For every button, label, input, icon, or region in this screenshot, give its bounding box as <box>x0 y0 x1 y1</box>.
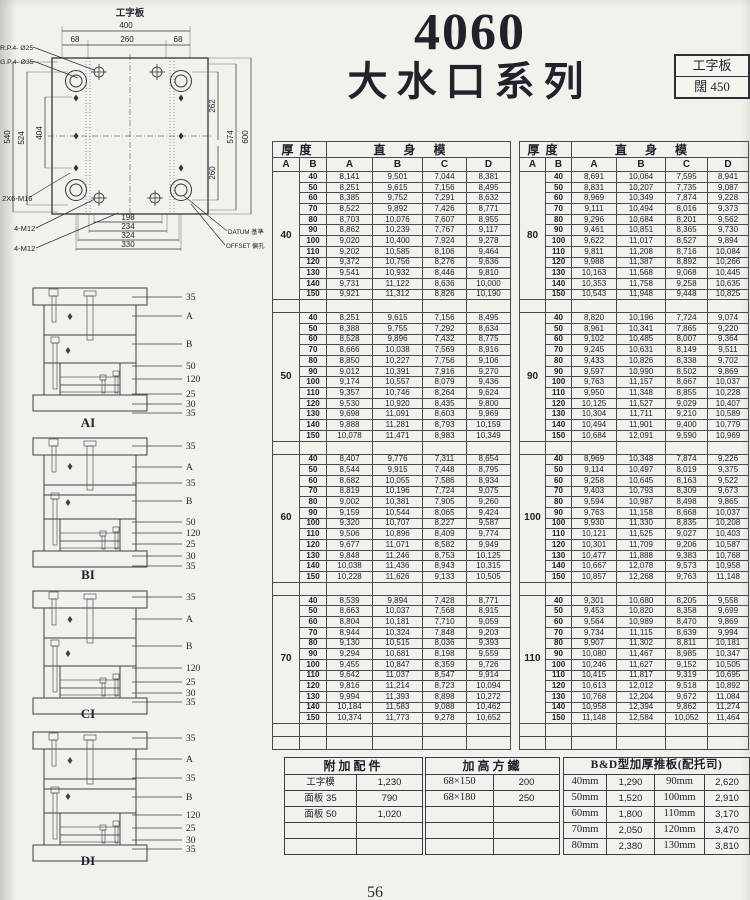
price-cell: 11,037 <box>373 670 423 681</box>
thickness-b-value: 110 <box>546 388 572 399</box>
table-row: 1409,88811,2818,79310,159 <box>273 420 511 431</box>
table-row: 15010,85712,2689,76311,148 <box>520 572 749 583</box>
price-cell: 9,811 <box>572 246 617 257</box>
section-callout: 50 <box>186 362 196 372</box>
price-cell: 10,196 <box>617 313 666 324</box>
price-cell: 8,409 <box>423 529 467 540</box>
table-row: 809,43310,8268,3389,702 <box>520 356 749 367</box>
table-row: 909,76311,1588,66810,037 <box>520 507 749 518</box>
dim-404: 404 <box>35 126 44 140</box>
price-cell: 9,816 <box>327 681 373 692</box>
price-cell: 10,990 <box>617 366 666 377</box>
price-cell: 12,268 <box>617 572 666 583</box>
section-callout: 30 <box>186 552 196 562</box>
screw-hole-circles <box>91 64 165 206</box>
price-cell: 11,711 <box>617 409 666 420</box>
price-cell: 8,502 <box>666 366 708 377</box>
price-cell: 8,944 <box>327 627 373 638</box>
price-cell: 8,862 <box>327 225 373 236</box>
price-cell: 9,159 <box>327 507 373 518</box>
section-callout: 35 <box>186 479 196 489</box>
price-cell: 7,724 <box>423 486 467 497</box>
callout-4-m12-b: 4-M12 <box>14 244 35 253</box>
table-row: 40mm1,29090mm2,620 <box>564 775 750 791</box>
price-cell: 8,663 <box>327 606 373 617</box>
price-cell: 11,527 <box>617 398 666 409</box>
thickness-b-value: 90 <box>546 649 572 660</box>
price-cell: 9,364 <box>708 334 749 345</box>
page-number: 56 <box>352 884 398 900</box>
price-cell: 9,403 <box>572 486 617 497</box>
col-header-d: D <box>708 158 749 172</box>
thickness-b-value: 50 <box>546 323 572 334</box>
table-row: 609,25810,6458,1639,522 <box>520 475 749 486</box>
price-cell: 9,862 <box>666 702 708 713</box>
price-cell: 8,666 <box>327 345 373 356</box>
price-cell: 9,400 <box>666 420 708 431</box>
price-cell: 11,115 <box>617 627 666 638</box>
callout-2x6-m16: 2X6-M16 <box>2 194 32 203</box>
price-cell: 10,228 <box>708 388 749 399</box>
section-callout: B <box>186 793 192 803</box>
price-cell: 7,924 <box>423 236 467 247</box>
thickness-b-value: 140 <box>300 420 327 431</box>
price-cell: 10,958 <box>572 702 617 713</box>
riser-block-table: 加高方鐵 68×15020068×180250 <box>425 757 560 855</box>
thickness-b-value: 80 <box>546 638 572 649</box>
price-cell: 9,573 <box>666 561 708 572</box>
price-cell: 8,019 <box>666 465 708 476</box>
thickness-b-value: 40 <box>300 595 327 606</box>
price-cell: 8,522 <box>327 204 373 215</box>
table-row: 80408,69110,0647,5958,941 <box>520 172 749 183</box>
section-callout: 25 <box>186 540 196 550</box>
table-row: 1009,45510,8478,3599,726 <box>273 659 511 670</box>
price-cell: 9,174 <box>327 377 373 388</box>
price-cell: 10,851 <box>617 225 666 236</box>
thickness-b-value: 110 <box>546 529 572 540</box>
dim-600: 600 <box>241 130 250 144</box>
price-cell: 9,501 <box>373 172 423 183</box>
table-cell: 100mm <box>655 791 705 807</box>
price-cell: 8,961 <box>572 323 617 334</box>
price-cell: 11,888 <box>617 550 666 561</box>
table-row: 14010,49411,9019,40010,779 <box>520 420 749 431</box>
table-row: 工字模1,230 <box>285 775 423 791</box>
thickness-b-value: 110 <box>546 670 572 681</box>
table-row <box>426 807 560 823</box>
price-cell: 10,544 <box>373 507 423 518</box>
table-row: 809,29610,6848,2019,562 <box>520 214 749 225</box>
price-cell: 8,639 <box>666 627 708 638</box>
table-row: 509,11410,4978,0199,375 <box>520 465 749 476</box>
price-cell: 7,586 <box>423 475 467 486</box>
thickness-b-value: 50 <box>300 465 327 476</box>
price-cell: 10,969 <box>708 430 749 441</box>
price-cell: 9,424 <box>467 507 511 518</box>
price-cell: 8,036 <box>423 638 467 649</box>
price-cell: 8,943 <box>423 561 467 572</box>
table-cell: 1,520 <box>607 791 655 807</box>
thickness-a-value: 80 <box>520 172 546 300</box>
price-cell: 10,349 <box>617 193 666 204</box>
section-callout: 35 <box>186 774 196 784</box>
thickness-b-value: 70 <box>300 345 327 356</box>
table-cell: 工字模 <box>285 775 357 791</box>
thickness-b-value: 110 <box>546 246 572 257</box>
price-cell: 8,016 <box>666 204 708 215</box>
price-cell: 9,020 <box>327 236 373 247</box>
table-row <box>426 823 560 839</box>
price-cell: 11,758 <box>617 278 666 289</box>
dim-324: 324 <box>121 231 135 240</box>
price-cell: 9,763 <box>572 507 617 518</box>
price-cell: 10,494 <box>572 420 617 431</box>
price-cell: 8,205 <box>666 595 708 606</box>
table-cell: 70mm <box>564 823 607 839</box>
separator-row <box>520 300 749 313</box>
price-cell: 10,076 <box>373 214 423 225</box>
price-cell: 9,260 <box>467 497 511 508</box>
price-cell: 8,106 <box>423 246 467 257</box>
price-cell: 8,385 <box>327 193 373 204</box>
table-row: 70408,5399,8947,4288,771 <box>273 595 511 606</box>
price-cell: 8,855 <box>666 388 708 399</box>
price-cell: 8,826 <box>423 289 467 300</box>
price-cell: 12,012 <box>617 681 666 692</box>
price-cell: 9,301 <box>572 595 617 606</box>
plate-label: 工字板 <box>116 7 145 19</box>
price-cell: 8,227 <box>423 518 467 529</box>
price-cell: 8,771 <box>467 595 511 606</box>
table-row: 110409,30110,6808,2059,558 <box>520 595 749 606</box>
table-row: 508,96110,3417,8659,220 <box>520 323 749 334</box>
price-cell: 9,594 <box>572 497 617 508</box>
price-cell: 8,795 <box>467 465 511 476</box>
thickness-b-value: 40 <box>300 454 327 465</box>
price-cell: 8,668 <box>666 507 708 518</box>
section-callout: 35 <box>186 562 196 572</box>
section-label: DI <box>81 853 95 868</box>
callout-4-m12-a: 4-M12 <box>14 224 35 233</box>
table-row: 12010,61312,0129,51810,892 <box>520 681 749 692</box>
price-cell: 11,773 <box>373 713 423 724</box>
price-cell: 9,677 <box>327 540 373 551</box>
table-cell <box>285 839 357 855</box>
thickness-b-value: 80 <box>546 214 572 225</box>
thickness-b-value: 40 <box>546 172 572 183</box>
price-cell: 8,547 <box>423 670 467 681</box>
price-cell: 10,381 <box>373 497 423 508</box>
plate-plan-drawing: 工字板 400 68 260 68 540 524 404 262 260 57… <box>0 0 272 268</box>
table-cell: 1,020 <box>357 807 423 823</box>
thickness-b-value: 50 <box>546 606 572 617</box>
price-cell: 11,626 <box>373 572 423 583</box>
table-row <box>285 839 423 855</box>
price-cell: 11,583 <box>373 702 423 713</box>
table-cell: 110mm <box>655 807 705 823</box>
thickness-b-value: 90 <box>300 649 327 660</box>
table-row: 709,73411,1158,6399,994 <box>520 627 749 638</box>
price-cell: 8,793 <box>423 420 467 431</box>
price-cell: 10,407 <box>708 398 749 409</box>
price-cell: 9,506 <box>327 529 373 540</box>
price-cell: 9,245 <box>572 345 617 356</box>
price-cell: 9,294 <box>327 649 373 660</box>
price-cell: 9,029 <box>666 398 708 409</box>
separator-row <box>520 582 749 595</box>
section-callout: 35 <box>186 409 196 419</box>
price-cell: 8,338 <box>666 356 708 367</box>
price-cell: 9,088 <box>423 702 467 713</box>
price-cell: 10,746 <box>373 388 423 399</box>
price-cell: 8,007 <box>666 334 708 345</box>
thickness-b-value: 120 <box>546 540 572 551</box>
price-cell: 12,204 <box>617 691 666 702</box>
price-cell: 11,312 <box>373 289 423 300</box>
table-row: 14010,95812,3949,86211,274 <box>520 702 749 713</box>
price-cell: 9,776 <box>373 454 423 465</box>
price-cell: 8,941 <box>708 172 749 183</box>
thickness-b-value: 130 <box>300 691 327 702</box>
price-cell: 8,544 <box>327 465 373 476</box>
table-row: 11010,41511,8179,31910,695 <box>520 670 749 681</box>
price-cell: 8,407 <box>327 454 373 465</box>
price-cell: 9,615 <box>373 313 423 324</box>
table-row: 1109,50610,8968,4099,774 <box>273 529 511 540</box>
separator-row <box>520 737 749 750</box>
table-cell: 1,290 <box>607 775 655 791</box>
price-cell: 10,094 <box>467 681 511 692</box>
price-cell: 10,239 <box>373 225 423 236</box>
price-cell: 8,198 <box>423 649 467 660</box>
price-cell: 8,141 <box>327 172 373 183</box>
section-callout: 120 <box>186 664 201 674</box>
price-cell: 11,568 <box>617 268 666 279</box>
price-cell: 8,636 <box>423 278 467 289</box>
price-cell: 8,251 <box>327 182 373 193</box>
price-cell: 10,543 <box>572 289 617 300</box>
price-cell: 7,756 <box>423 356 467 367</box>
price-cell: 10,037 <box>708 507 749 518</box>
price-cell: 8,819 <box>327 486 373 497</box>
price-cell: 9,111 <box>572 204 617 215</box>
table-cell: 60mm <box>564 807 607 823</box>
table-cell <box>357 839 423 855</box>
price-cell: 9,206 <box>666 540 708 551</box>
price-cell: 9,587 <box>467 518 511 529</box>
col-header-b1: B <box>546 158 572 172</box>
price-cell: 10,462 <box>467 702 511 713</box>
thickness-b-value: 60 <box>546 475 572 486</box>
thickness-a-value: 90 <box>520 313 546 441</box>
price-cell: 10,052 <box>666 713 708 724</box>
callout-offset: OFFSET 偏孔 <box>226 242 264 250</box>
table-row: 1109,95011,3488,85510,228 <box>520 388 749 399</box>
price-cell: 9,130 <box>327 638 373 649</box>
thickness-b-value: 130 <box>300 268 327 279</box>
table-row: 508,83110,2077,7359,087 <box>520 182 749 193</box>
price-cell: 8,381 <box>467 172 511 183</box>
thickness-b-value: 50 <box>300 182 327 193</box>
table-row: 908,86210,2397,7679,117 <box>273 225 511 236</box>
price-cell: 7,428 <box>423 595 467 606</box>
thickness-b-value: 130 <box>546 691 572 702</box>
table-cell: 2,380 <box>607 839 655 855</box>
mold-section-DI: 35A35B120253035DI <box>0 727 270 879</box>
table-cell: 1,800 <box>607 807 655 823</box>
price-cell: 9,372 <box>327 257 373 268</box>
table-cell: 790 <box>357 791 423 807</box>
price-cell: 11,348 <box>617 388 666 399</box>
table-row: 1209,53010,9208,4359,800 <box>273 398 511 409</box>
thickness-header: 厚度 <box>273 142 327 158</box>
thickness-b-value: 80 <box>546 356 572 367</box>
price-cell: 10,304 <box>572 409 617 420</box>
price-cell: 10,497 <box>617 465 666 476</box>
accessories-title: 附加配件 <box>285 758 423 775</box>
price-cell: 11,071 <box>373 540 423 551</box>
price-cell: 10,208 <box>708 518 749 529</box>
price-cell: 9,969 <box>467 409 511 420</box>
thickness-b-value: 130 <box>546 550 572 561</box>
price-cell: 7,607 <box>423 214 467 225</box>
mold-section-CI: 35AB120253035CI <box>0 586 270 728</box>
price-cell: 9,699 <box>708 606 749 617</box>
table-row: 68×180250 <box>426 791 560 807</box>
table-row: 50408,2519,6157,1568,495 <box>273 313 511 324</box>
price-cell: 8,251 <box>327 313 373 324</box>
section-callout: B <box>186 340 192 350</box>
separator-row <box>273 300 511 313</box>
price-cell: 10,301 <box>572 540 617 551</box>
price-cell: 8,163 <box>666 475 708 486</box>
thickness-b-value: 140 <box>546 561 572 572</box>
price-cell: 8,716 <box>666 246 708 257</box>
separator-row <box>273 441 511 454</box>
price-cell: 10,958 <box>708 561 749 572</box>
price-cell: 10,228 <box>327 572 373 583</box>
price-cell: 10,768 <box>572 691 617 702</box>
dim-198: 198 <box>121 213 135 222</box>
table-cell <box>426 839 494 855</box>
price-cell: 8,835 <box>666 518 708 529</box>
thickness-b-value: 100 <box>546 236 572 247</box>
price-cell: 8,820 <box>572 313 617 324</box>
price-cell: 7,905 <box>423 497 467 508</box>
table-cell <box>357 823 423 839</box>
price-cell: 10,181 <box>708 638 749 649</box>
thickness-b-value: 70 <box>300 627 327 638</box>
thickness-b-value: 80 <box>300 638 327 649</box>
col-header-b1: B <box>300 158 327 172</box>
thickness-a-value: 100 <box>520 454 546 582</box>
thickness-b-value: 60 <box>300 193 327 204</box>
price-cell: 9,562 <box>708 214 749 225</box>
price-cell: 8,309 <box>666 486 708 497</box>
price-cell: 10,324 <box>373 627 423 638</box>
table-cell: 3,170 <box>705 807 750 823</box>
price-cell: 8,527 <box>666 236 708 247</box>
mold-type-header: 直身模 <box>572 142 749 158</box>
price-cell: 9,074 <box>708 313 749 324</box>
price-cell: 10,987 <box>617 497 666 508</box>
table-row <box>426 839 560 855</box>
price-cell: 10,857 <box>572 572 617 583</box>
table-row: 708,94410,3247,8489,203 <box>273 627 511 638</box>
thickness-b-value: 80 <box>300 356 327 367</box>
price-cell: 10,246 <box>572 659 617 670</box>
dim-524: 524 <box>17 131 26 145</box>
price-cell: 8,359 <box>423 659 467 670</box>
price-cell: 9,726 <box>467 659 511 670</box>
price-cell: 9,102 <box>572 334 617 345</box>
table-row: 508,66310,0377,5688,915 <box>273 606 511 617</box>
table-row: 13010,47711,8889,38310,768 <box>520 550 749 561</box>
col-header-c: C <box>423 158 467 172</box>
price-cell: 11,148 <box>708 572 749 583</box>
dim-540: 540 <box>3 130 12 144</box>
table-row: 40408,1419,5017,0448,381 <box>273 172 511 183</box>
price-cell: 9,921 <box>327 289 373 300</box>
price-cell: 9,464 <box>467 246 511 257</box>
table-row: 面板 35790 <box>285 791 423 807</box>
price-cell: 11,281 <box>373 420 423 431</box>
separator-row <box>273 724 511 737</box>
price-cell: 8,634 <box>467 323 511 334</box>
price-cell: 7,291 <box>423 193 467 204</box>
price-cell: 10,793 <box>617 486 666 497</box>
price-cell: 9,915 <box>373 465 423 476</box>
price-cell: 7,767 <box>423 225 467 236</box>
price-cell: 10,768 <box>708 550 749 561</box>
price-cell: 8,831 <box>572 182 617 193</box>
price-cell: 9,117 <box>467 225 511 236</box>
price-cell: 9,433 <box>572 356 617 367</box>
table-row: 11010,12111,5259,02710,403 <box>520 529 749 540</box>
price-cell: 10,163 <box>572 268 617 279</box>
table-row: 1009,93011,3308,83510,208 <box>520 518 749 529</box>
price-cell: 11,901 <box>617 420 666 431</box>
price-cell: 8,771 <box>467 204 511 215</box>
section-callout: 35 <box>186 734 196 744</box>
table-row: 809,59410,9878,4989,865 <box>520 497 749 508</box>
price-cell: 8,850 <box>327 356 373 367</box>
table-cell: 90mm <box>655 775 705 791</box>
thickness-b-value: 110 <box>300 529 327 540</box>
price-cell: 8,079 <box>423 377 467 388</box>
price-cell: 10,989 <box>617 617 666 628</box>
table-cell: 68×150 <box>426 775 494 791</box>
price-cell: 11,158 <box>617 507 666 518</box>
section-callout: 25 <box>186 678 196 688</box>
price-cell: 11,148 <box>572 713 617 724</box>
price-cell: 11,627 <box>617 659 666 670</box>
section-callout: A <box>186 312 193 322</box>
table-row: 909,15910,5448,0659,424 <box>273 507 511 518</box>
price-cell: 9,002 <box>327 497 373 508</box>
table-row: 70mm2,050120mm3,470 <box>564 823 750 839</box>
thickness-b-value: 60 <box>546 193 572 204</box>
price-cell: 9,258 <box>572 475 617 486</box>
price-cell: 10,589 <box>708 409 749 420</box>
price-cell: 9,133 <box>423 572 467 583</box>
price-cell: 10,391 <box>373 366 423 377</box>
table-row: 90408,82010,1967,7249,074 <box>520 313 749 324</box>
riser-title: 加高方鐵 <box>426 758 560 775</box>
col-header-a1: A <box>273 158 300 172</box>
table-row: 1209,37210,7568,2769,636 <box>273 257 511 268</box>
